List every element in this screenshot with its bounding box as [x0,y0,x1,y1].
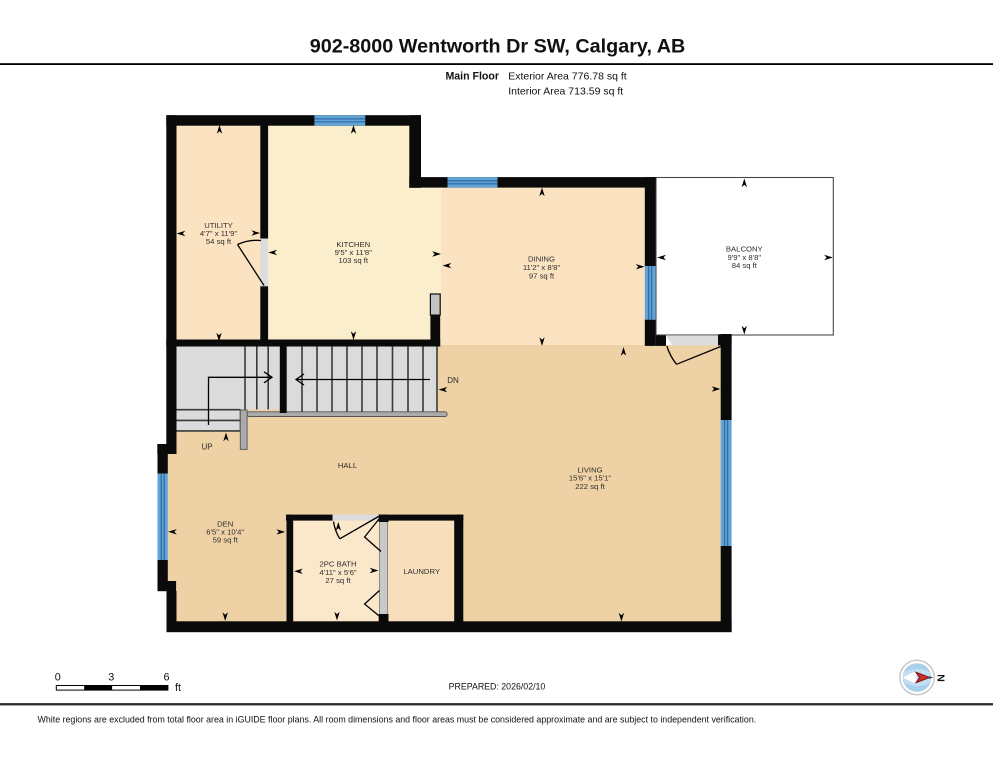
svg-text:27 sq ft: 27 sq ft [325,576,351,585]
svg-text:3: 3 [108,672,114,684]
svg-text:6: 6 [163,672,169,684]
svg-text:HALL: HALL [338,461,358,470]
svg-text:Main Floor: Main Floor [445,71,499,83]
svg-text:59 sq ft: 59 sq ft [213,536,239,545]
svg-text:84 sq ft: 84 sq ft [732,261,758,270]
svg-text:103 sq ft: 103 sq ft [339,256,369,265]
svg-text:97 sq ft: 97 sq ft [529,272,555,281]
svg-text:222 sq ft: 222 sq ft [575,482,605,491]
svg-text:ft: ft [175,682,181,694]
svg-text:54 sq ft: 54 sq ft [206,237,232,246]
svg-text:Interior Area 713.59 sq ft: Interior Area 713.59 sq ft [508,86,623,98]
svg-text:DN: DN [447,376,459,385]
svg-text:LAUNDRY: LAUNDRY [403,567,440,576]
svg-text:Exterior Area 776.78 sq ft: Exterior Area 776.78 sq ft [508,71,627,83]
svg-text:White regions are excluded fro: White regions are excluded from total fl… [38,715,757,725]
svg-text:902-8000 Wentworth Dr SW, Calg: 902-8000 Wentworth Dr SW, Calgary, AB [310,35,686,57]
svg-text:N: N [935,674,947,682]
svg-text:PREPARED: 2026/02/10: PREPARED: 2026/02/10 [449,682,546,692]
svg-text:UP: UP [201,443,212,452]
svg-text:0: 0 [55,672,61,684]
